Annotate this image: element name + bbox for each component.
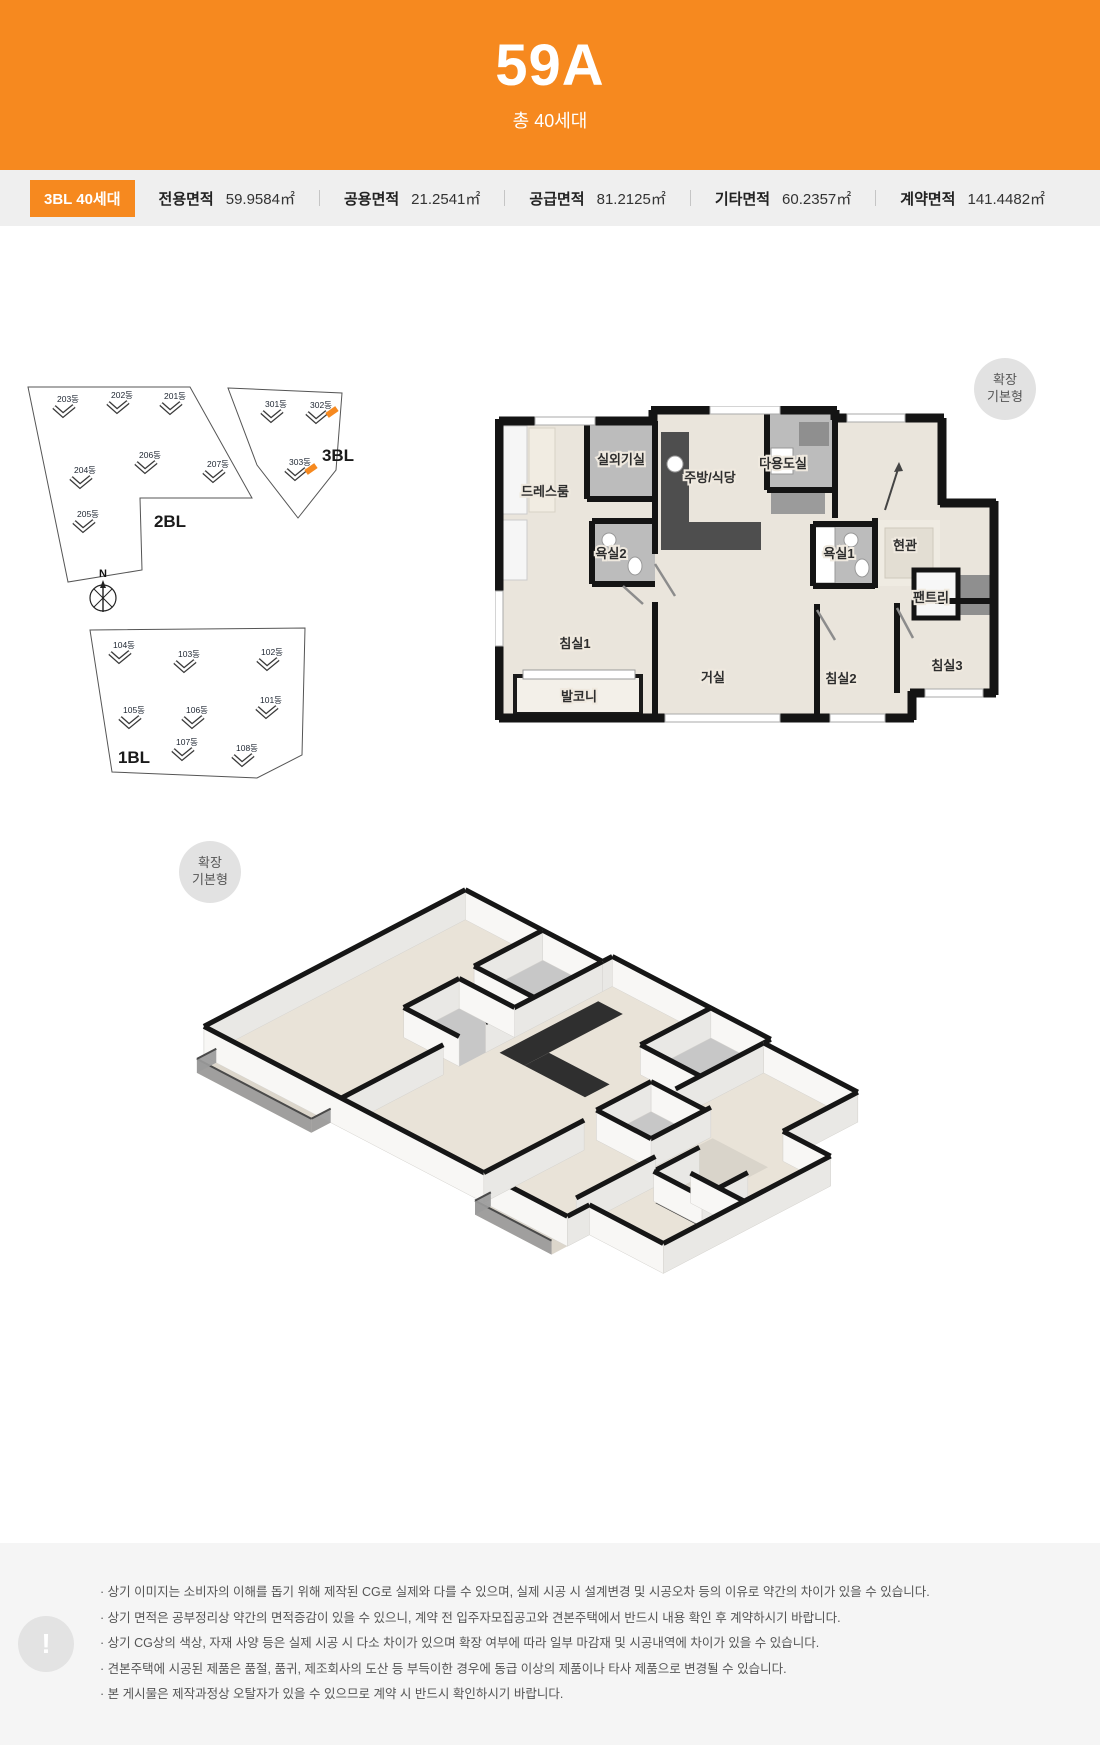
room-label-living: 거실 (701, 670, 725, 685)
building-204동: 204동 (71, 465, 96, 486)
room-label-entry: 현관 (893, 538, 917, 553)
stat-label: 공용면적 (344, 188, 399, 209)
area-stats-bar: 3BL 40세대 전용면적 59.9584㎡ 공용면적 21.2541㎡ 공급면… (0, 170, 1100, 226)
block-label-1bl: 1BL (118, 748, 150, 767)
building-label: 105동 (123, 705, 145, 715)
stat-other-area: 기타면적 60.2357㎡ (715, 188, 851, 209)
stat-divider (319, 190, 320, 206)
pantry-cabinet (958, 575, 994, 615)
room-label-bedroom3: 침실3 (931, 658, 962, 673)
building-label: 103동 (178, 649, 200, 659)
stat-value: 81.2125㎡ (597, 188, 666, 209)
building-206동: 206동 (136, 450, 161, 471)
building-102동: 102동 (258, 647, 283, 668)
building-103동: 103동 (175, 649, 200, 670)
stat-value: 141.4482㎡ (967, 188, 1045, 209)
disclaimer-item: 상기 CG상의 색상, 자재 사양 등은 실제 시공 시 다소 차이가 있으며 … (100, 1631, 930, 1657)
bath2-toilet (628, 557, 642, 575)
disclaimer-item: 상기 면적은 공부정리상 약간의 면적증감이 있을 수 있으니, 계약 전 입주… (100, 1606, 930, 1632)
badge-line2: 기본형 (192, 872, 228, 889)
building-label: 206동 (139, 450, 161, 460)
building-106동: 106동 (183, 705, 208, 726)
room-label-balcony: 발코니 (561, 689, 597, 704)
disclaimer-list: 상기 이미지는 소비자의 이해를 돕기 위해 제작된 CG로 실제와 다를 수 … (74, 1580, 970, 1708)
disclaimer-item: 상기 이미지는 소비자의 이해를 돕기 위해 제작된 CG로 실제와 다를 수 … (100, 1580, 930, 1606)
stat-divider (690, 190, 691, 206)
badge-line2: 기본형 (987, 389, 1023, 406)
building-label: 107동 (176, 737, 198, 747)
room-label-kitchen: 주방/식당 (684, 470, 735, 485)
stat-label: 공급면적 (529, 188, 584, 209)
warning-icon: ! (18, 1616, 74, 1672)
building-202동: 202동 (108, 390, 133, 411)
expand-basic-badge-3d: 확장 기본형 (179, 841, 241, 903)
stat-exclusive-area: 전용면적 59.9584㎡ (159, 188, 295, 209)
stat-value: 21.2541㎡ (411, 188, 480, 209)
building-label: 102동 (261, 647, 283, 657)
dressroom-shelf (529, 428, 555, 512)
compass-north-label: N (99, 568, 107, 580)
building-104동: 104동 (110, 640, 135, 661)
disclaimer-item: 본 게시물은 제작과정상 오탈자가 있을 수 있으므로 계약 시 반드시 확인하… (100, 1682, 930, 1708)
stat-divider (875, 190, 876, 206)
badge-line1: 확장 (198, 855, 222, 872)
building-label: 104동 (113, 640, 135, 650)
stat-supply-area: 공급면적 81.2125㎡ (529, 188, 665, 209)
block-units-badge: 3BL 40세대 (30, 180, 135, 217)
building-label: 303동 (289, 457, 311, 467)
building-108동: 108동 (233, 743, 258, 764)
dressroom-closet (503, 426, 527, 514)
stat-common-area: 공용면적 21.2541㎡ (344, 188, 480, 209)
building-label: 202동 (111, 390, 133, 400)
site-plan-map: 2BL 3BL 1BL N 203동202동201동206동207동204동20… (20, 340, 365, 780)
building-label: 201동 (164, 391, 186, 401)
building-205동: 205동 (74, 509, 99, 530)
building-201동: 201동 (161, 391, 186, 412)
building-label: 203동 (57, 394, 79, 404)
total-units-subtitle: 총 40세대 (513, 107, 588, 133)
building-label: 108동 (236, 743, 258, 753)
kitchen-counter (661, 432, 689, 550)
building-207동: 207동 (204, 459, 229, 480)
room-label-pantry: 팬트리 (913, 590, 949, 605)
building-label: 101동 (260, 695, 282, 705)
building-label: 205동 (77, 509, 99, 519)
header: 59A 총 40세대 (0, 0, 1100, 170)
disclaimer-section: ! 상기 이미지는 소비자의 이해를 돕기 위해 제작된 CG로 실제와 다를 … (0, 1543, 1100, 1745)
block-label-2bl: 2BL (154, 512, 186, 531)
unit-type-title: 59A (495, 37, 604, 95)
building-301동: 301동 (262, 399, 287, 420)
building-label: 207동 (207, 459, 229, 469)
badge-line1: 확장 (993, 372, 1017, 389)
hall-storage (771, 492, 825, 514)
building-203동: 203동 (54, 394, 79, 415)
room-label-bedroom2: 침실2 (825, 671, 856, 686)
room-label-bath2: 욕실2 (595, 546, 626, 561)
utility-storage (799, 422, 829, 446)
building-label: 301동 (265, 399, 287, 409)
kitchen-sink (667, 456, 683, 472)
stat-label: 계약면적 (900, 188, 955, 209)
page: 59A 총 40세대 3BL 40세대 전용면적 59.9584㎡ 공용면적 2… (0, 0, 1100, 1745)
stat-value: 60.2357㎡ (782, 188, 851, 209)
building-302동: 302동 (307, 400, 339, 421)
stat-contract-area: 계약면적 141.4482㎡ (900, 188, 1045, 209)
building-label: 106동 (186, 705, 208, 715)
block-label-3bl: 3BL (322, 446, 354, 465)
kitchen-island (689, 522, 761, 550)
disclaimer-item: 견본주택에 시공된 제품은 품절, 품귀, 제조회사의 도산 등 부득이한 경우… (100, 1657, 930, 1683)
building-label: 302동 (310, 400, 332, 410)
floor-plan-2d: 실외기실 드레스룸 주방/식당 다용도실 욕실2 욕실1 현관 팬트리 침실1 … (495, 406, 1000, 730)
bath1-toilet (855, 559, 869, 577)
expand-basic-badge-2d: 확장 기본형 (974, 358, 1036, 420)
stat-value: 59.9584㎡ (226, 188, 295, 209)
stat-divider (504, 190, 505, 206)
building-303동: 303동 (286, 457, 318, 478)
stat-label: 전용면적 (159, 188, 214, 209)
room-label-bedroom1: 침실1 (559, 636, 590, 651)
room-label-bath1: 욕실1 (823, 546, 854, 561)
building-105동: 105동 (120, 705, 145, 726)
stat-label: 기타면적 (715, 188, 770, 209)
room-label-acunit: 실외기실 (597, 452, 645, 467)
building-label: 204동 (74, 465, 96, 475)
bath2-sink (602, 533, 616, 547)
iso-root (197, 890, 858, 1274)
floor-plan-3d-isometric (175, 845, 935, 1345)
balcony-window (523, 670, 635, 679)
building-101동: 101동 (257, 695, 282, 716)
building-107동: 107동 (173, 737, 198, 758)
bath1-sink (844, 533, 858, 547)
room-label-dressroom: 드레스룸 (521, 484, 569, 499)
room-label-utility: 다용도실 (759, 456, 807, 471)
dressroom-closet (503, 520, 527, 580)
